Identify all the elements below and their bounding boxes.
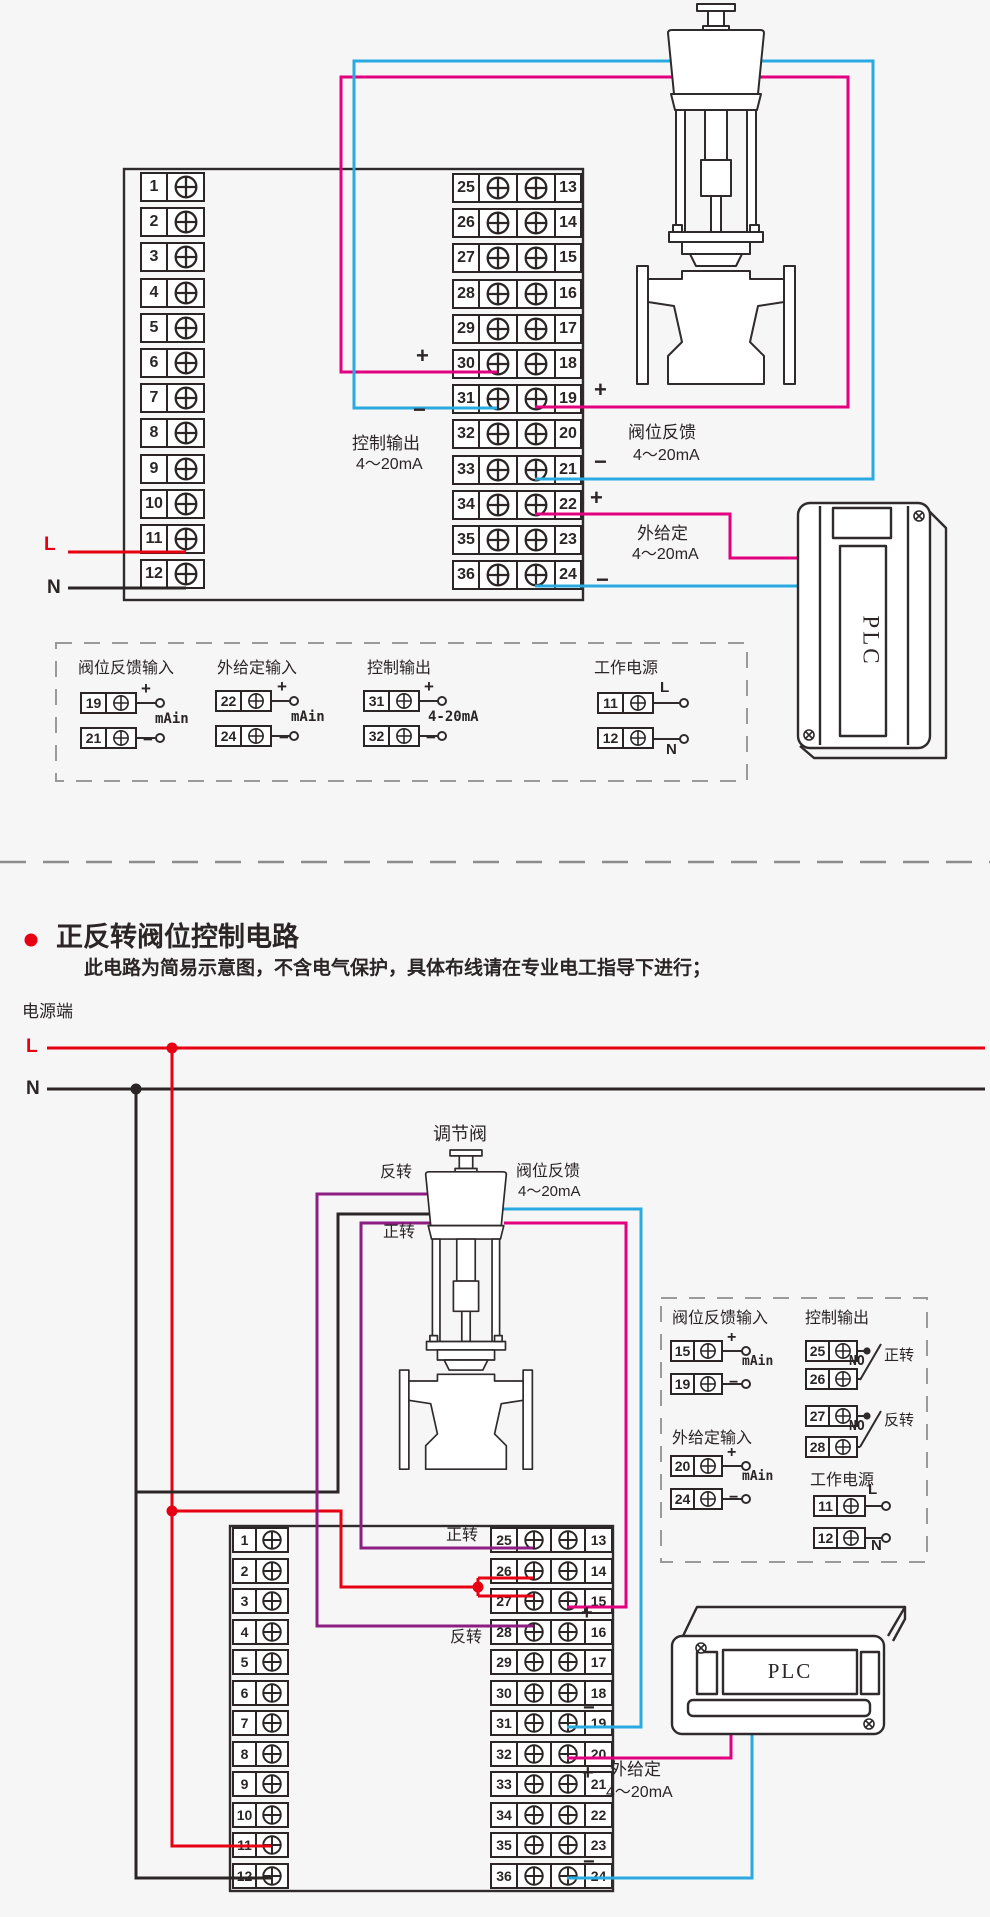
n-terminal-label: N xyxy=(871,1538,882,1555)
valve-feedback-label: 阀位反馈 xyxy=(516,1163,580,1181)
section-title: 正反转阀位控制电路 xyxy=(56,922,299,952)
plus-label: + xyxy=(582,1762,594,1784)
valve-feedback-range: 4～20mA xyxy=(518,1184,581,1201)
control-output-label: 控制输出 xyxy=(352,434,420,453)
group-title: 工作电源 xyxy=(810,1472,874,1490)
minus-label: − xyxy=(143,730,153,749)
forward-wire-label: 正转 xyxy=(383,1224,415,1242)
plus-label: + xyxy=(590,486,603,511)
group-title: 阀位反馈输入 xyxy=(672,1310,768,1328)
plus-label: + xyxy=(416,344,429,369)
group-title: 外给定输入 xyxy=(672,1430,752,1448)
range-label: mAin xyxy=(291,710,325,726)
valve-feedback-range: 4～20mA xyxy=(633,447,700,465)
minus-label: − xyxy=(583,1697,595,1719)
plus-label: + xyxy=(727,1329,736,1347)
minus-label: − xyxy=(413,398,426,423)
minus-label: − xyxy=(729,1374,738,1392)
group-title: 阀位反馈输入 xyxy=(78,660,174,678)
group-title: 控制输出 xyxy=(805,1310,869,1328)
minus-label: − xyxy=(596,568,609,593)
reverse-wire-label: 反转 xyxy=(450,1629,482,1647)
no-contact-label: NO xyxy=(849,1420,865,1435)
l-terminal-label: L xyxy=(44,534,56,555)
minus-label: − xyxy=(279,728,289,747)
plus-label: + xyxy=(277,677,287,696)
wiring-diagram-canvas: 1 25 132 26 143 27 154 28 165 29 176 30 … xyxy=(0,0,990,1917)
range-label: mAin xyxy=(155,712,189,728)
external-set-range: 4～20mA xyxy=(632,546,699,564)
n-bus-label: N xyxy=(26,1078,40,1099)
valve-label: 调节阀 xyxy=(433,1124,487,1144)
control-output-range: 4～20mA xyxy=(356,456,423,474)
l-terminal-label: L xyxy=(660,680,669,697)
plus-label: + xyxy=(594,378,607,403)
n-terminal-label: N xyxy=(666,742,677,759)
reverse-wire-label: 反转 xyxy=(380,1164,412,1182)
n-terminal-label: N xyxy=(47,577,61,598)
l-bus-label: L xyxy=(26,1036,38,1057)
plus-label: + xyxy=(727,1444,736,1462)
external-set-label: 外给定 xyxy=(637,524,688,543)
forward-wire-label: 正转 xyxy=(446,1527,478,1545)
range-label: mAin xyxy=(742,1355,773,1370)
group-title: 工作电源 xyxy=(594,660,658,678)
minus-label: − xyxy=(426,728,436,747)
power-terminal-label: 电源端 xyxy=(22,1002,73,1021)
range-label: mAin xyxy=(742,1470,773,1485)
forward-wire-label: 正转 xyxy=(884,1348,914,1365)
plus-label: + xyxy=(141,679,151,698)
external-set-label: 外给定 xyxy=(610,1760,661,1779)
minus-label: − xyxy=(594,450,607,475)
minus-label: − xyxy=(729,1489,738,1507)
reverse-wire-label: 反转 xyxy=(884,1413,914,1430)
minus-label: − xyxy=(583,1851,595,1873)
external-set-range: 4～20mA xyxy=(606,1784,673,1802)
l-terminal-label: L xyxy=(868,1482,877,1499)
plus-label: + xyxy=(581,1602,593,1624)
range-label: 4-20mA xyxy=(428,710,479,726)
section-subtitle: 此电路为简易示意图，不含电气保护，具体布线请在专业电工指导下进行； xyxy=(84,958,711,979)
group-title: 控制输出 xyxy=(367,660,431,678)
labels-layer: +−控制输出4～20mA+−阀位反馈4～20mA+−外给定4～20mALN阀位反… xyxy=(0,0,990,1917)
no-contact-label: NO xyxy=(849,1355,865,1370)
group-title: 外给定输入 xyxy=(217,660,297,678)
plus-label: + xyxy=(424,677,434,696)
valve-feedback-label: 阀位反馈 xyxy=(628,423,696,442)
